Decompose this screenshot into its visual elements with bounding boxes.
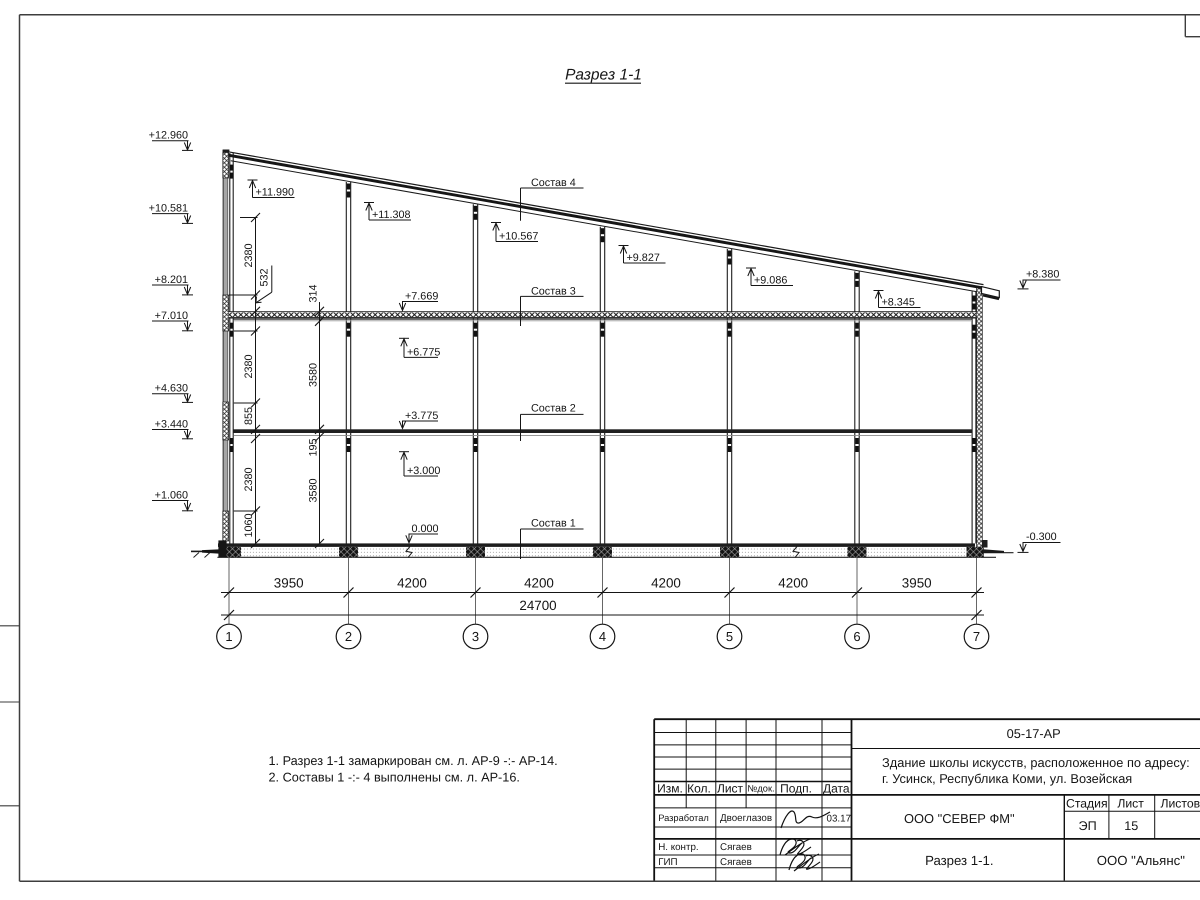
svg-text:03.17: 03.17 [827, 814, 852, 825]
svg-text:2380: 2380 [243, 354, 255, 378]
svg-text:3580: 3580 [307, 478, 319, 502]
svg-text:3: 3 [472, 629, 479, 644]
svg-text:1: 1 [225, 629, 232, 644]
svg-text:3950: 3950 [274, 575, 304, 590]
svg-text:195: 195 [308, 438, 320, 456]
svg-text:Сягаев: Сягаев [720, 857, 752, 868]
svg-text:3580: 3580 [307, 363, 319, 387]
svg-text:+9.086: +9.086 [754, 275, 787, 287]
svg-text:Состав 4: Состав 4 [531, 177, 576, 189]
svg-text:ЭП: ЭП [1079, 819, 1097, 833]
svg-text:4200: 4200 [524, 575, 554, 590]
svg-text:Здание школы искусств, располо: Здание школы искусств, расположенное по … [882, 755, 1190, 770]
svg-text:314: 314 [308, 284, 320, 302]
svg-text:4: 4 [599, 629, 606, 644]
svg-text:4200: 4200 [778, 575, 808, 590]
svg-text:+7.010: +7.010 [155, 310, 188, 322]
svg-text:Кол.: Кол. [687, 781, 711, 795]
svg-text:1060: 1060 [243, 513, 255, 537]
svg-text:г. Усинск, Республика Коми, ул: г. Усинск, Республика Коми, ул. Возейска… [882, 771, 1132, 786]
svg-text:+8.345: +8.345 [882, 297, 915, 309]
svg-text:2380: 2380 [243, 243, 255, 267]
svg-text:+11.308: +11.308 [372, 209, 411, 221]
svg-text:Разрез 1-1.: Разрез 1-1. [925, 853, 993, 868]
svg-text:Разработал: Разработал [658, 813, 709, 823]
svg-text:+4.630: +4.630 [155, 383, 188, 395]
svg-text:+3.000: +3.000 [407, 465, 440, 477]
svg-text:2: 2 [345, 629, 352, 644]
svg-text:№док.: №док. [747, 784, 774, 794]
svg-text:+10.567: +10.567 [499, 231, 538, 243]
svg-text:+6.775: +6.775 [407, 347, 440, 359]
svg-text:6: 6 [853, 629, 860, 644]
svg-text:532: 532 [258, 268, 270, 286]
svg-text:Состав 2: Состав 2 [531, 403, 576, 415]
svg-text:855: 855 [243, 407, 255, 425]
svg-text:24700: 24700 [519, 598, 556, 613]
svg-text:Лист: Лист [1117, 797, 1144, 811]
svg-text:0.000: 0.000 [412, 523, 439, 535]
svg-text:15: 15 [1124, 819, 1138, 833]
svg-text:+10.581: +10.581 [149, 203, 188, 215]
svg-text:ГИП: ГИП [658, 857, 677, 868]
svg-text:7: 7 [973, 629, 980, 644]
svg-text:+1.060: +1.060 [155, 489, 188, 501]
svg-text:+3.440: +3.440 [155, 418, 188, 430]
svg-text:Сягаев: Сягаев [720, 842, 752, 853]
svg-text:Изм.: Изм. [657, 781, 683, 795]
svg-text:ООО "Альянс": ООО "Альянс" [1097, 853, 1185, 868]
svg-text:+3.775: +3.775 [405, 410, 438, 422]
svg-text:Н. контр.: Н. контр. [658, 842, 698, 853]
svg-text:Подп.: Подп. [780, 781, 812, 795]
svg-text:+11.990: +11.990 [256, 187, 295, 199]
svg-text:Двоеглазов: Двоеглазов [720, 813, 772, 824]
svg-text:+7.669: +7.669 [405, 291, 438, 303]
svg-text:Стадия: Стадия [1066, 797, 1108, 811]
svg-text:-0.300: -0.300 [1026, 531, 1057, 543]
svg-text:4200: 4200 [651, 575, 681, 590]
svg-text:5: 5 [726, 629, 733, 644]
svg-text:Дата: Дата [823, 781, 850, 795]
svg-text:+9.827: +9.827 [627, 252, 660, 264]
svg-text:Состав 1: Состав 1 [531, 517, 576, 529]
svg-text:+8.201: +8.201 [155, 274, 188, 286]
svg-text:Лист: Лист [717, 781, 744, 795]
svg-text:Разрез 1-1: Разрез 1-1 [565, 67, 642, 84]
svg-text:2380: 2380 [243, 467, 255, 491]
svg-text:Состав 3: Состав 3 [531, 285, 576, 297]
svg-text:Листов: Листов [1161, 797, 1200, 811]
svg-text:ООО "СЕВЕР ФМ": ООО "СЕВЕР ФМ" [904, 811, 1015, 826]
svg-text:1. Разрез 1-1 замаркирован см.: 1. Разрез 1-1 замаркирован см. л. АР-9 -… [269, 754, 558, 768]
svg-text:+8.380: +8.380 [1026, 269, 1059, 281]
svg-text:3950: 3950 [902, 575, 932, 590]
svg-text:05-17-АР: 05-17-АР [1007, 726, 1061, 741]
svg-text:+12.960: +12.960 [149, 130, 188, 142]
svg-text:4200: 4200 [397, 575, 427, 590]
svg-text:2. Составы 1 -:- 4 выполнены с: 2. Составы 1 -:- 4 выполнены см. л. АР-1… [269, 771, 520, 785]
